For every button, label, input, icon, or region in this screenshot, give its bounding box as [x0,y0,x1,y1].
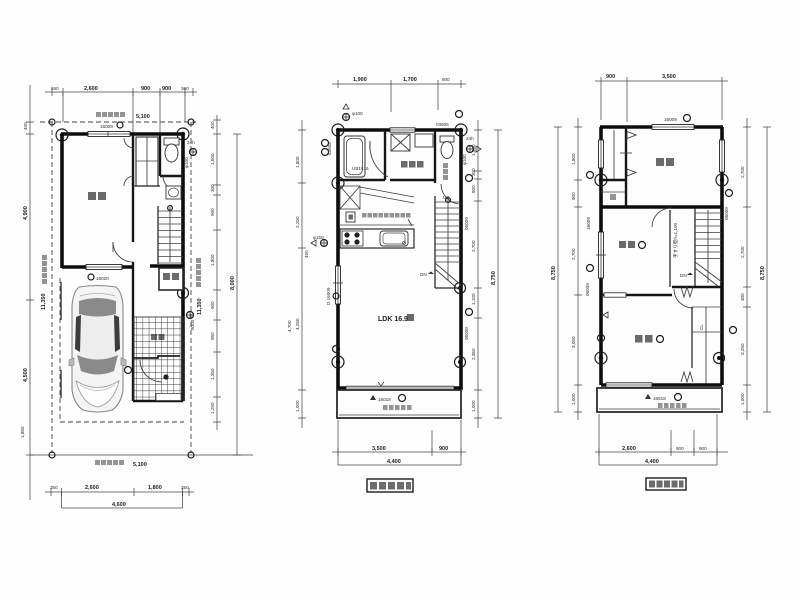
svg-text:4,600: 4,600 [112,502,126,508]
svg-text:φ100: φ100 [462,154,467,165]
svg-text:1,850: 1,850 [20,426,25,438]
svg-text:4,900: 4,900 [23,206,29,220]
svg-text:8,750: 8,750 [551,266,557,280]
svg-text:16518: 16518 [653,396,666,401]
svg-text:800: 800 [442,77,450,82]
svg-text:1,100: 1,100 [471,293,476,305]
svg-text:2,700: 2,700 [571,248,576,260]
svg-text:03605: 03605 [436,122,449,127]
svg-text:1,000: 1,000 [740,393,745,405]
svg-text:5,100: 5,100 [136,114,150,120]
svg-text:UB1616: UB1616 [352,166,369,171]
svg-text:1,350: 1,350 [210,368,215,380]
svg-text:3,500: 3,500 [372,446,386,452]
svg-text:11,350: 11,350 [41,293,47,310]
svg-text:900: 900 [606,74,615,80]
svg-text:350: 350 [50,485,58,490]
svg-text:900: 900 [676,446,684,451]
svg-text:8,750: 8,750 [760,266,766,280]
svg-text:3,050: 3,050 [571,336,576,348]
svg-text:900: 900 [571,192,576,200]
svg-text:1,800: 1,800 [210,254,215,266]
svg-text:8,750: 8,750 [491,271,497,285]
svg-text:06009: 06009 [724,207,729,220]
svg-text:2,250: 2,250 [295,216,300,228]
svg-text:φ100: φ100 [352,111,363,116]
svg-text:350: 350 [181,485,189,490]
svg-text:900: 900 [210,301,215,309]
svg-text:2,600: 2,600 [622,446,636,452]
svg-text:2,600: 2,600 [84,86,98,92]
svg-text:4,250: 4,250 [295,318,300,330]
svg-text:1,700: 1,700 [403,77,417,83]
svg-text:2,600: 2,600 [85,485,99,491]
svg-text:16020: 16020 [96,276,109,281]
svg-text:400: 400 [23,122,28,130]
svg-text:8,000: 8,000 [230,276,236,290]
svg-text:DN: DN [420,272,427,277]
svg-text:5,100: 5,100 [133,462,147,468]
svg-text:3,500: 3,500 [662,74,676,80]
svg-text:300: 300 [471,168,476,176]
svg-text:2,700: 2,700 [471,240,476,252]
svg-text:8000: 8000 [190,319,195,330]
svg-text:CL: CL [699,324,704,330]
svg-text:2,700: 2,700 [740,166,745,178]
svg-text:16009: 16009 [664,117,677,122]
svg-text:24h: 24h [466,136,474,141]
svg-text:260: 260 [51,86,59,91]
svg-text:16009: 16009 [586,217,591,230]
svg-text:UP: UP [443,195,449,200]
svg-text:900: 900 [141,86,150,92]
svg-text:LDK 16.9: LDK 16.9 [378,316,408,323]
svg-text:1,800: 1,800 [148,485,162,491]
svg-text:06009: 06009 [464,217,469,230]
svg-text:300: 300 [210,184,215,192]
svg-text:D 16009: D 16009 [326,287,331,305]
svg-text:手すり壁h=1,100: 手すり壁h=1,100 [672,222,679,258]
svg-text:4,400: 4,400 [387,459,401,465]
svg-text:1,500: 1,500 [210,153,215,165]
svg-text:4,700: 4,700 [287,320,292,332]
svg-text:1,000: 1,000 [295,400,300,412]
svg-text:4,500: 4,500 [23,368,29,382]
svg-text:3,250: 3,250 [740,343,745,355]
svg-text:1,000: 1,000 [571,393,576,405]
svg-text:16009: 16009 [100,124,113,129]
svg-text:11,350: 11,350 [197,298,203,315]
svg-text:360: 360 [181,86,189,91]
svg-text:1,000: 1,000 [471,400,476,412]
svg-text:900: 900 [699,446,707,451]
svg-text:φ100: φ100 [184,157,189,168]
svg-text:DN: DN [680,273,687,278]
svg-text:φ150: φ150 [313,235,324,240]
svg-text:900: 900 [162,86,171,92]
svg-text:900: 900 [210,208,215,216]
svg-text:4,400: 4,400 [645,459,659,465]
svg-text:83505: 83505 [327,142,332,155]
svg-text:950: 950 [210,332,215,340]
svg-text:300: 300 [740,293,745,301]
svg-text:1,800: 1,800 [295,156,300,168]
svg-text:1,800: 1,800 [571,153,576,165]
svg-text:16018: 16018 [378,397,391,402]
svg-text:900: 900 [439,446,448,452]
svg-text:2,350: 2,350 [471,348,476,360]
svg-text:24h: 24h [187,140,195,145]
svg-text:06009: 06009 [585,283,590,296]
svg-text:450: 450 [304,250,309,258]
svg-text:1,900: 1,900 [353,77,367,83]
svg-text:2,700: 2,700 [740,246,745,258]
svg-text:06009: 06009 [464,327,469,340]
svg-text:1,250: 1,250 [210,402,215,414]
svg-text:800: 800 [471,185,476,193]
svg-text:400: 400 [210,121,215,129]
